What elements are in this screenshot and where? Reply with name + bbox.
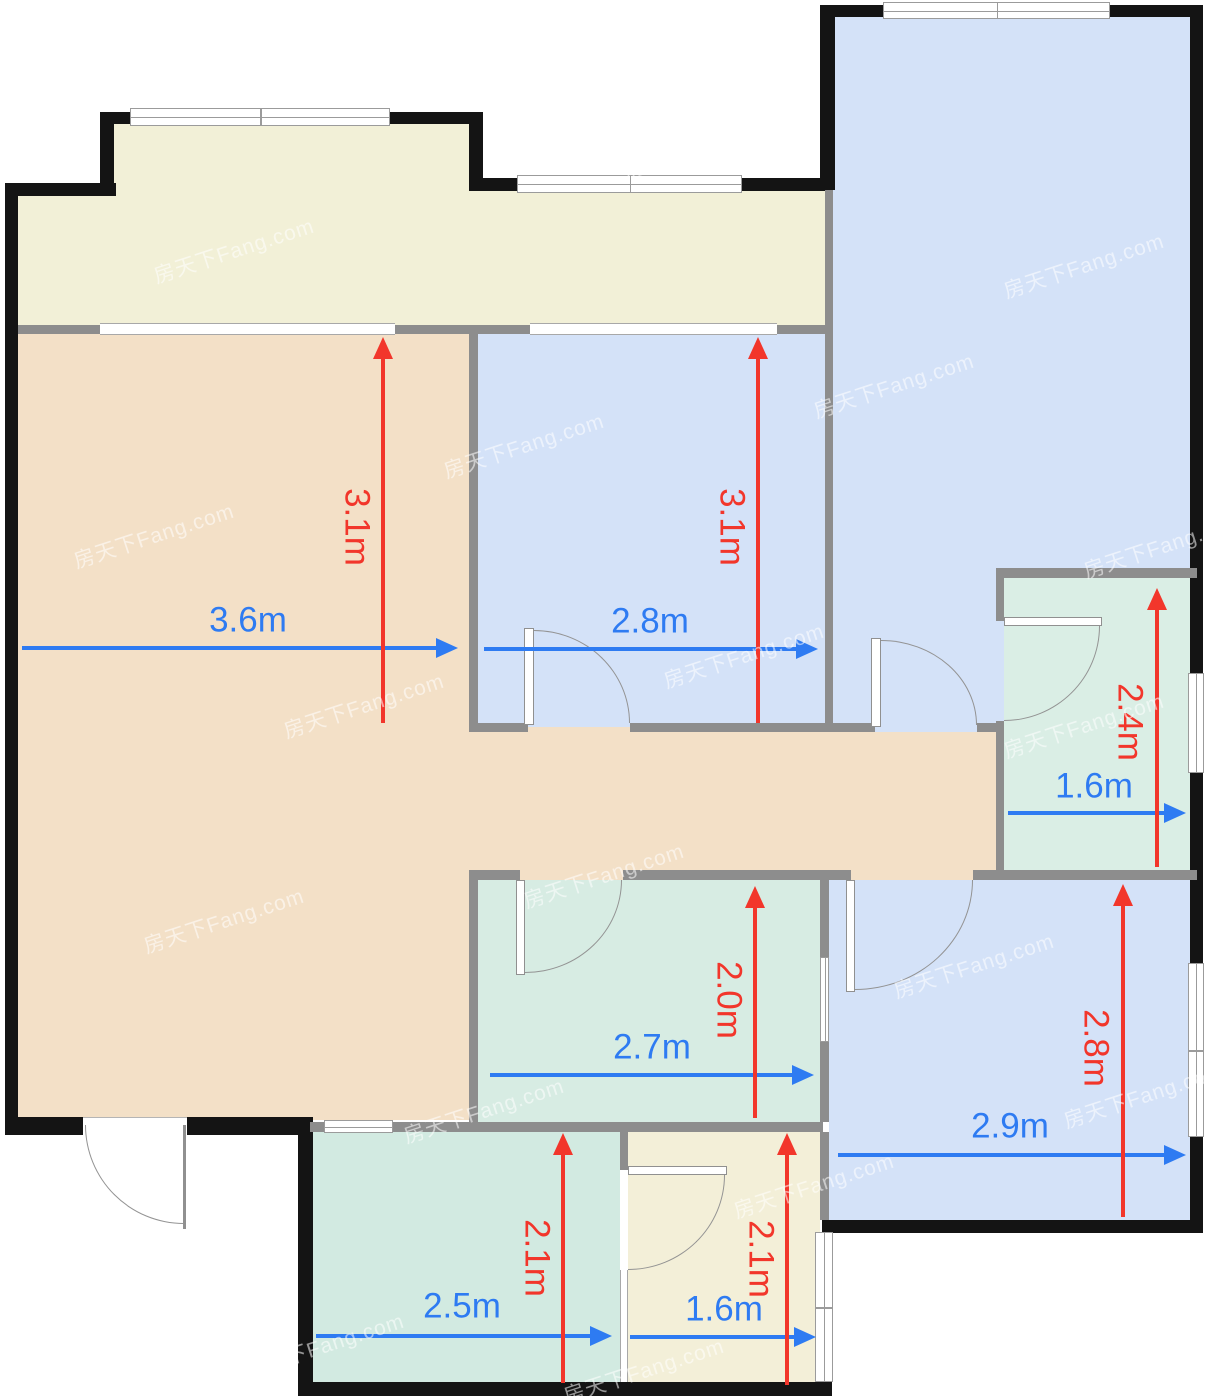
dim-room-green-middle-width-line (490, 1073, 796, 1077)
dim-room-green-bottom-height-arrowhead-icon (553, 1133, 573, 1155)
dim-room-green-middle-width-arrowhead-icon (792, 1065, 814, 1085)
dim-room-green-bottom-height-label: 2.1m (520, 1219, 555, 1297)
inner-wall (973, 870, 1197, 880)
dim-bedroom-middle-height-line (756, 355, 760, 723)
bathroom-bottom-right-window-icon (815, 1232, 833, 1382)
bedroom-large-top-window-icon (883, 2, 1110, 19)
outer-wall (1190, 1137, 1203, 1232)
window-divider (816, 1307, 832, 1309)
dim-bedroom-middle-width-arrowhead-icon (796, 639, 818, 659)
dim-room-green-bottom-width-line (316, 1334, 594, 1338)
inner-wall (469, 723, 528, 732)
dim-bedroom-bottom-right-width-line (838, 1153, 1168, 1157)
dim-room-green-bottom-width-arrowhead-icon (590, 1326, 612, 1346)
outer-wall (100, 112, 114, 192)
inner-wall (469, 334, 478, 723)
window-pane-line (1196, 674, 1197, 772)
dim-bedroom-middle-height-arrowhead-icon (748, 337, 768, 359)
room-balcony-main (18, 190, 825, 335)
bedroom-balcony-slider (530, 323, 777, 335)
dim-room-green-bottom-height-line (561, 1151, 565, 1383)
outer-wall (5, 183, 116, 196)
bathroom-right-window-icon (1188, 673, 1204, 773)
dim-bathroom-right-width-arrowhead-icon (1164, 803, 1186, 823)
door-bedroom-bottom-right-leaf (846, 880, 855, 992)
outer-wall (298, 1127, 313, 1395)
outer-wall (820, 5, 883, 17)
dim-bathroom-bottom-width-line (630, 1335, 798, 1339)
dim-bedroom-middle-width-line (484, 647, 800, 651)
room-green-bottom-window-icon (324, 1120, 393, 1133)
dim-room-green-middle-height-label: 2.0m (712, 961, 747, 1039)
inner-wall (820, 1132, 829, 1220)
room-living-room (18, 330, 469, 1120)
dim-bathroom-right-width-line (1008, 811, 1168, 815)
dim-bedroom-bottom-right-width-label: 2.9m (971, 1109, 1049, 1144)
room-corridor (469, 723, 1004, 880)
dim-bathroom-bottom-width-arrowhead-icon (794, 1327, 816, 1347)
dim-living-height-label: 3.1m (340, 488, 375, 566)
outer-wall (187, 1117, 313, 1135)
outer-wall (822, 1220, 1203, 1233)
inner-wall (620, 1132, 628, 1170)
outer-wall (298, 1382, 832, 1396)
inner-wall (825, 190, 833, 732)
door-room-green-middle-leaf (516, 880, 525, 975)
window-pane-line (825, 958, 826, 1041)
dim-bedroom-middle-height-label: 3.1m (715, 488, 750, 566)
dim-living-height-line (381, 355, 385, 723)
dim-living-height-arrowhead-icon (373, 337, 393, 359)
inner-wall (395, 325, 530, 334)
inner-wall (630, 723, 825, 732)
inner-wall (393, 1122, 469, 1132)
inner-wall (469, 1122, 823, 1132)
outer-wall (5, 1117, 83, 1135)
inner-wall (469, 870, 520, 880)
dim-bedroom-bottom-right-height-label: 2.8m (1079, 1009, 1114, 1087)
window-divider (260, 109, 262, 125)
outer-wall (1190, 773, 1203, 963)
inner-wall (623, 870, 851, 880)
dim-bathroom-right-height-label: 2.4m (1113, 683, 1148, 761)
dim-bathroom-right-height-arrowhead-icon (1147, 588, 1167, 610)
dim-bedroom-bottom-right-height-arrowhead-icon (1113, 884, 1133, 906)
balcony-right-window-icon (517, 175, 742, 193)
dim-living-width-label: 3.6m (209, 603, 287, 638)
inner-wall (820, 880, 829, 957)
inner-wall (996, 568, 1197, 578)
dim-room-green-middle-height-line (753, 904, 757, 1118)
dim-bathroom-bottom-height-arrowhead-icon (777, 1133, 797, 1155)
inner-wall (996, 578, 1004, 621)
inner-wall (833, 723, 875, 732)
room-green-middle-window-icon (820, 957, 829, 1042)
door-bathroom-right-leaf (1004, 617, 1102, 626)
inner-wall (18, 325, 100, 334)
watermark-text: 房天下Fang.com (899, 1295, 1067, 1375)
door-bedroom-middle-leaf (524, 628, 534, 725)
door-bedroom-large-leaf (871, 638, 881, 727)
balcony-bump-window-icon (130, 108, 390, 126)
bedroom-bottom-right-window-icon (1188, 963, 1204, 1137)
dim-bedroom-bottom-right-height-line (1121, 902, 1125, 1217)
dim-bathroom-right-width-label: 1.6m (1055, 769, 1133, 804)
floor-plan: 3.6m2.8m1.6m2.7m2.9m2.5m1.6m3.1m3.1m2.4m… (0, 0, 1208, 1400)
dim-bathroom-bottom-height-line (785, 1151, 789, 1385)
room-room-green-bottom (313, 1132, 620, 1382)
dim-bedroom-middle-width-label: 2.8m (611, 604, 689, 639)
outer-wall (820, 5, 835, 190)
bathroom-bottom-left-window (620, 1270, 628, 1382)
inner-wall (310, 1122, 324, 1132)
watermark-text: 房天下Fang.com (619, 105, 787, 185)
inner-wall (777, 325, 825, 334)
window-divider (997, 3, 999, 18)
dim-bathroom-right-height-line (1155, 606, 1159, 867)
outer-wall (469, 178, 517, 191)
dim-room-green-bottom-width-label: 2.5m (423, 1289, 501, 1324)
dim-room-green-middle-width-label: 2.7m (613, 1030, 691, 1065)
door-bathroom-bottom-leaf (628, 1166, 727, 1175)
window-divider (630, 176, 632, 192)
outer-wall (5, 183, 18, 1135)
inner-wall (996, 721, 1004, 870)
dim-bedroom-bottom-right-width-arrowhead-icon (1164, 1145, 1186, 1165)
window-divider (1189, 1050, 1203, 1052)
dim-bathroom-bottom-height-label: 2.1m (744, 1220, 779, 1298)
inner-wall (469, 880, 478, 1122)
inner-wall (820, 1042, 829, 1122)
window-pane-line (325, 1127, 392, 1128)
dim-room-green-middle-height-arrowhead-icon (745, 886, 765, 908)
dim-living-width-arrowhead-icon (436, 638, 458, 658)
outer-wall (1190, 5, 1203, 560)
entrance-door-arc-icon (85, 1125, 184, 1224)
living-balcony-slider (100, 323, 395, 335)
outer-wall (742, 178, 826, 191)
dim-living-width-line (22, 646, 440, 650)
